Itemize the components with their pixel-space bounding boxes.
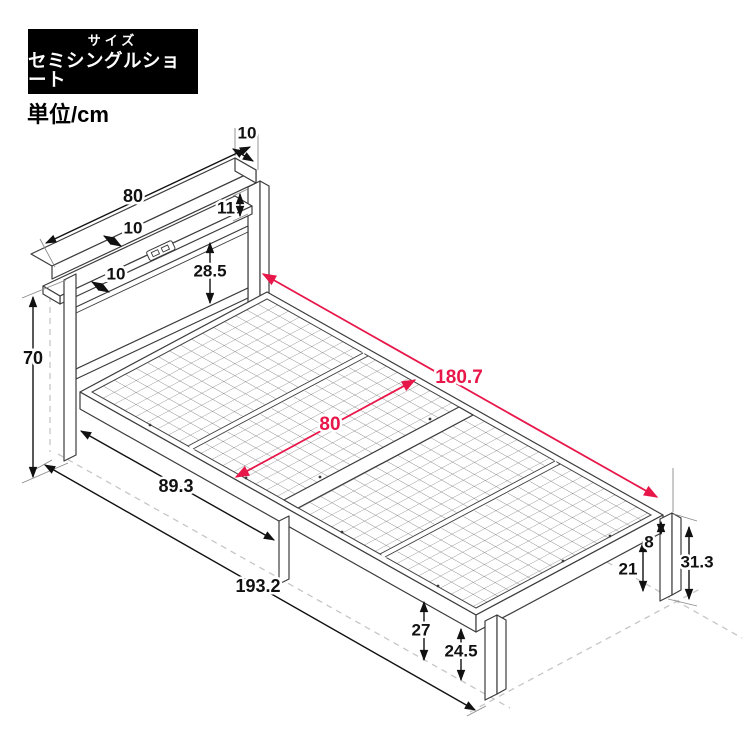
foot-back-leg — [660, 513, 672, 601]
dim-shelf-depth-lower-label: 10 — [107, 264, 126, 283]
bed-frame-diagram: 180.7 80 10 80 11 10 10 28.5 — [0, 0, 750, 750]
dimension-under-clearance-foot: 24.5 — [444, 629, 477, 680]
foot-front-leg — [485, 615, 497, 700]
dim-inner-width-label: 80 — [319, 414, 340, 435]
dim-footboard-height-label: 31.3 — [680, 552, 713, 571]
dim-shelf-depth-top-label: 10 — [238, 123, 257, 142]
dim-shelf-depth-upper-label: 10 — [124, 218, 143, 237]
dim-under-clearance-foot-label: 24.5 — [444, 641, 477, 660]
dimension-under-clearance-center: 27 — [412, 602, 431, 660]
dim-panel-height-label: 28.5 — [193, 261, 226, 280]
dimension-shelf-depth-top: 10 — [233, 123, 256, 161]
dim-head-to-center-leg-label: 89.3 — [158, 476, 193, 496]
dim-inner-length-label: 180.7 — [435, 367, 483, 388]
dim-under-clearance-center-label: 27 — [412, 620, 431, 639]
dim-slot-height-label: 11 — [217, 198, 235, 217]
middle-front-leg — [279, 516, 289, 584]
dim-headboard-width-label: 80 — [123, 186, 143, 206]
dim-under-clearance-side-label: 21 — [619, 559, 638, 578]
dim-total-length-label: 193.2 — [235, 576, 280, 596]
dimension-footboard-height: 31.3 — [680, 527, 713, 599]
platform — [80, 292, 663, 632]
dimension-headboard-height: 70 — [23, 297, 43, 477]
product-size-diagram-page: サイズ セミシングルショート 単位/cm — [0, 0, 750, 750]
dim-frame-height-label: 8 — [644, 532, 653, 551]
dim-headboard-height-label: 70 — [23, 348, 43, 368]
